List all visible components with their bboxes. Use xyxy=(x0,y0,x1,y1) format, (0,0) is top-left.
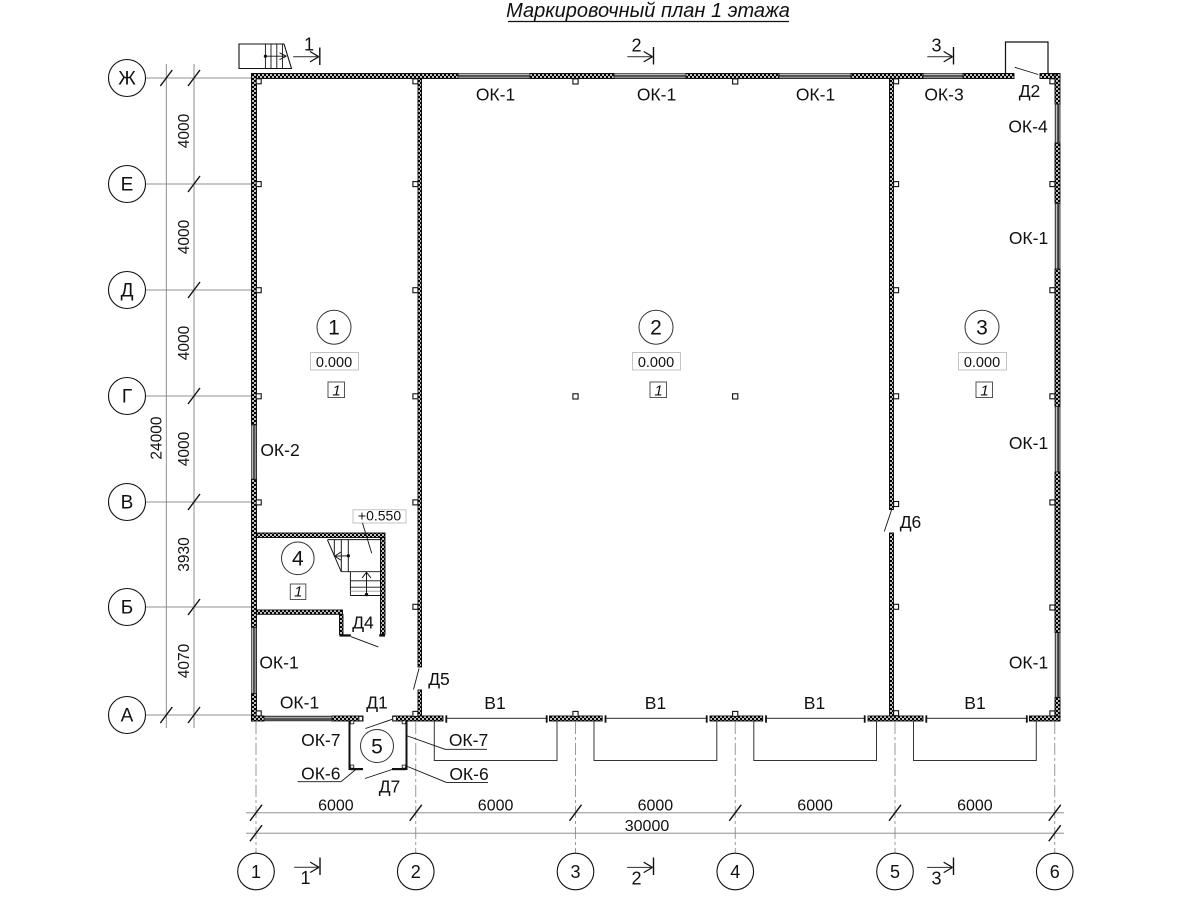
svg-text:1: 1 xyxy=(654,382,662,399)
svg-text:В1: В1 xyxy=(484,693,505,713)
svg-text:6000: 6000 xyxy=(957,797,993,814)
svg-text:ОК-1: ОК-1 xyxy=(259,653,298,673)
svg-text:4000: 4000 xyxy=(176,325,193,360)
svg-text:+0.550: +0.550 xyxy=(358,508,401,524)
svg-text:4: 4 xyxy=(292,548,304,571)
svg-text:В1: В1 xyxy=(964,693,985,713)
svg-text:1: 1 xyxy=(328,317,340,340)
svg-text:4: 4 xyxy=(730,862,740,882)
svg-text:1: 1 xyxy=(332,382,340,399)
svg-text:Д1: Д1 xyxy=(366,693,388,713)
svg-text:30000: 30000 xyxy=(625,818,670,835)
svg-text:1: 1 xyxy=(304,35,314,55)
svg-text:1: 1 xyxy=(980,382,988,399)
svg-text:0.000: 0.000 xyxy=(638,355,674,371)
svg-text:24000: 24000 xyxy=(149,416,166,459)
svg-text:3: 3 xyxy=(570,862,580,882)
svg-text:ОК-1: ОК-1 xyxy=(1009,433,1048,453)
svg-text:4000: 4000 xyxy=(176,113,193,148)
svg-text:ОК-4: ОК-4 xyxy=(1008,117,1048,137)
svg-text:3930: 3930 xyxy=(176,537,193,572)
svg-text:0.000: 0.000 xyxy=(316,355,352,371)
svg-text:А: А xyxy=(121,706,134,727)
svg-text:ОК-6: ОК-6 xyxy=(449,764,488,784)
svg-text:6000: 6000 xyxy=(638,797,674,814)
svg-text:Маркировочный план 1 этажа: Маркировочный план 1 этажа xyxy=(506,0,790,22)
svg-text:6: 6 xyxy=(1050,862,1060,882)
svg-text:Д2: Д2 xyxy=(1019,81,1041,101)
svg-text:Б: Б xyxy=(121,598,133,619)
svg-text:4070: 4070 xyxy=(176,643,193,678)
svg-text:ОК-6: ОК-6 xyxy=(301,764,340,784)
svg-text:2: 2 xyxy=(632,36,642,56)
svg-text:2: 2 xyxy=(632,869,642,889)
svg-text:ОК-3: ОК-3 xyxy=(924,85,963,105)
svg-text:5: 5 xyxy=(890,862,900,882)
svg-text:В1: В1 xyxy=(804,693,825,713)
svg-text:ОК-7: ОК-7 xyxy=(301,730,340,750)
svg-text:0.000: 0.000 xyxy=(964,355,1000,371)
svg-text:4000: 4000 xyxy=(176,219,193,254)
svg-text:В: В xyxy=(121,493,134,514)
svg-text:3: 3 xyxy=(976,317,988,340)
svg-text:4000: 4000 xyxy=(176,431,193,466)
svg-text:Е: Е xyxy=(121,175,134,196)
svg-text:1: 1 xyxy=(294,584,302,601)
svg-text:ОК-1: ОК-1 xyxy=(280,693,319,713)
svg-text:ОК-1: ОК-1 xyxy=(1009,653,1048,673)
svg-text:3: 3 xyxy=(932,36,942,56)
svg-text:Д4: Д4 xyxy=(352,613,374,633)
svg-text:Г: Г xyxy=(122,387,132,408)
svg-text:ОК-2: ОК-2 xyxy=(260,440,299,460)
svg-text:Д6: Д6 xyxy=(900,512,922,532)
svg-text:ОК-1: ОК-1 xyxy=(796,85,835,105)
svg-text:Д5: Д5 xyxy=(428,669,450,689)
svg-text:В1: В1 xyxy=(645,693,666,713)
svg-text:2: 2 xyxy=(650,317,662,340)
svg-text:Ж: Ж xyxy=(118,69,136,90)
svg-text:1: 1 xyxy=(251,862,261,882)
svg-text:ОК-1: ОК-1 xyxy=(476,85,515,105)
svg-text:3: 3 xyxy=(932,869,942,889)
svg-text:1: 1 xyxy=(301,868,311,888)
svg-text:6000: 6000 xyxy=(797,797,833,814)
svg-text:ОК-1: ОК-1 xyxy=(637,85,676,105)
svg-text:6000: 6000 xyxy=(318,797,354,814)
svg-text:5: 5 xyxy=(371,735,383,758)
svg-text:ОК-7: ОК-7 xyxy=(449,730,488,750)
svg-text:ОК-1: ОК-1 xyxy=(1009,228,1048,248)
svg-text:Д: Д xyxy=(121,281,134,302)
svg-text:Д7: Д7 xyxy=(379,777,401,797)
svg-text:2: 2 xyxy=(411,862,421,882)
svg-text:6000: 6000 xyxy=(478,797,514,814)
